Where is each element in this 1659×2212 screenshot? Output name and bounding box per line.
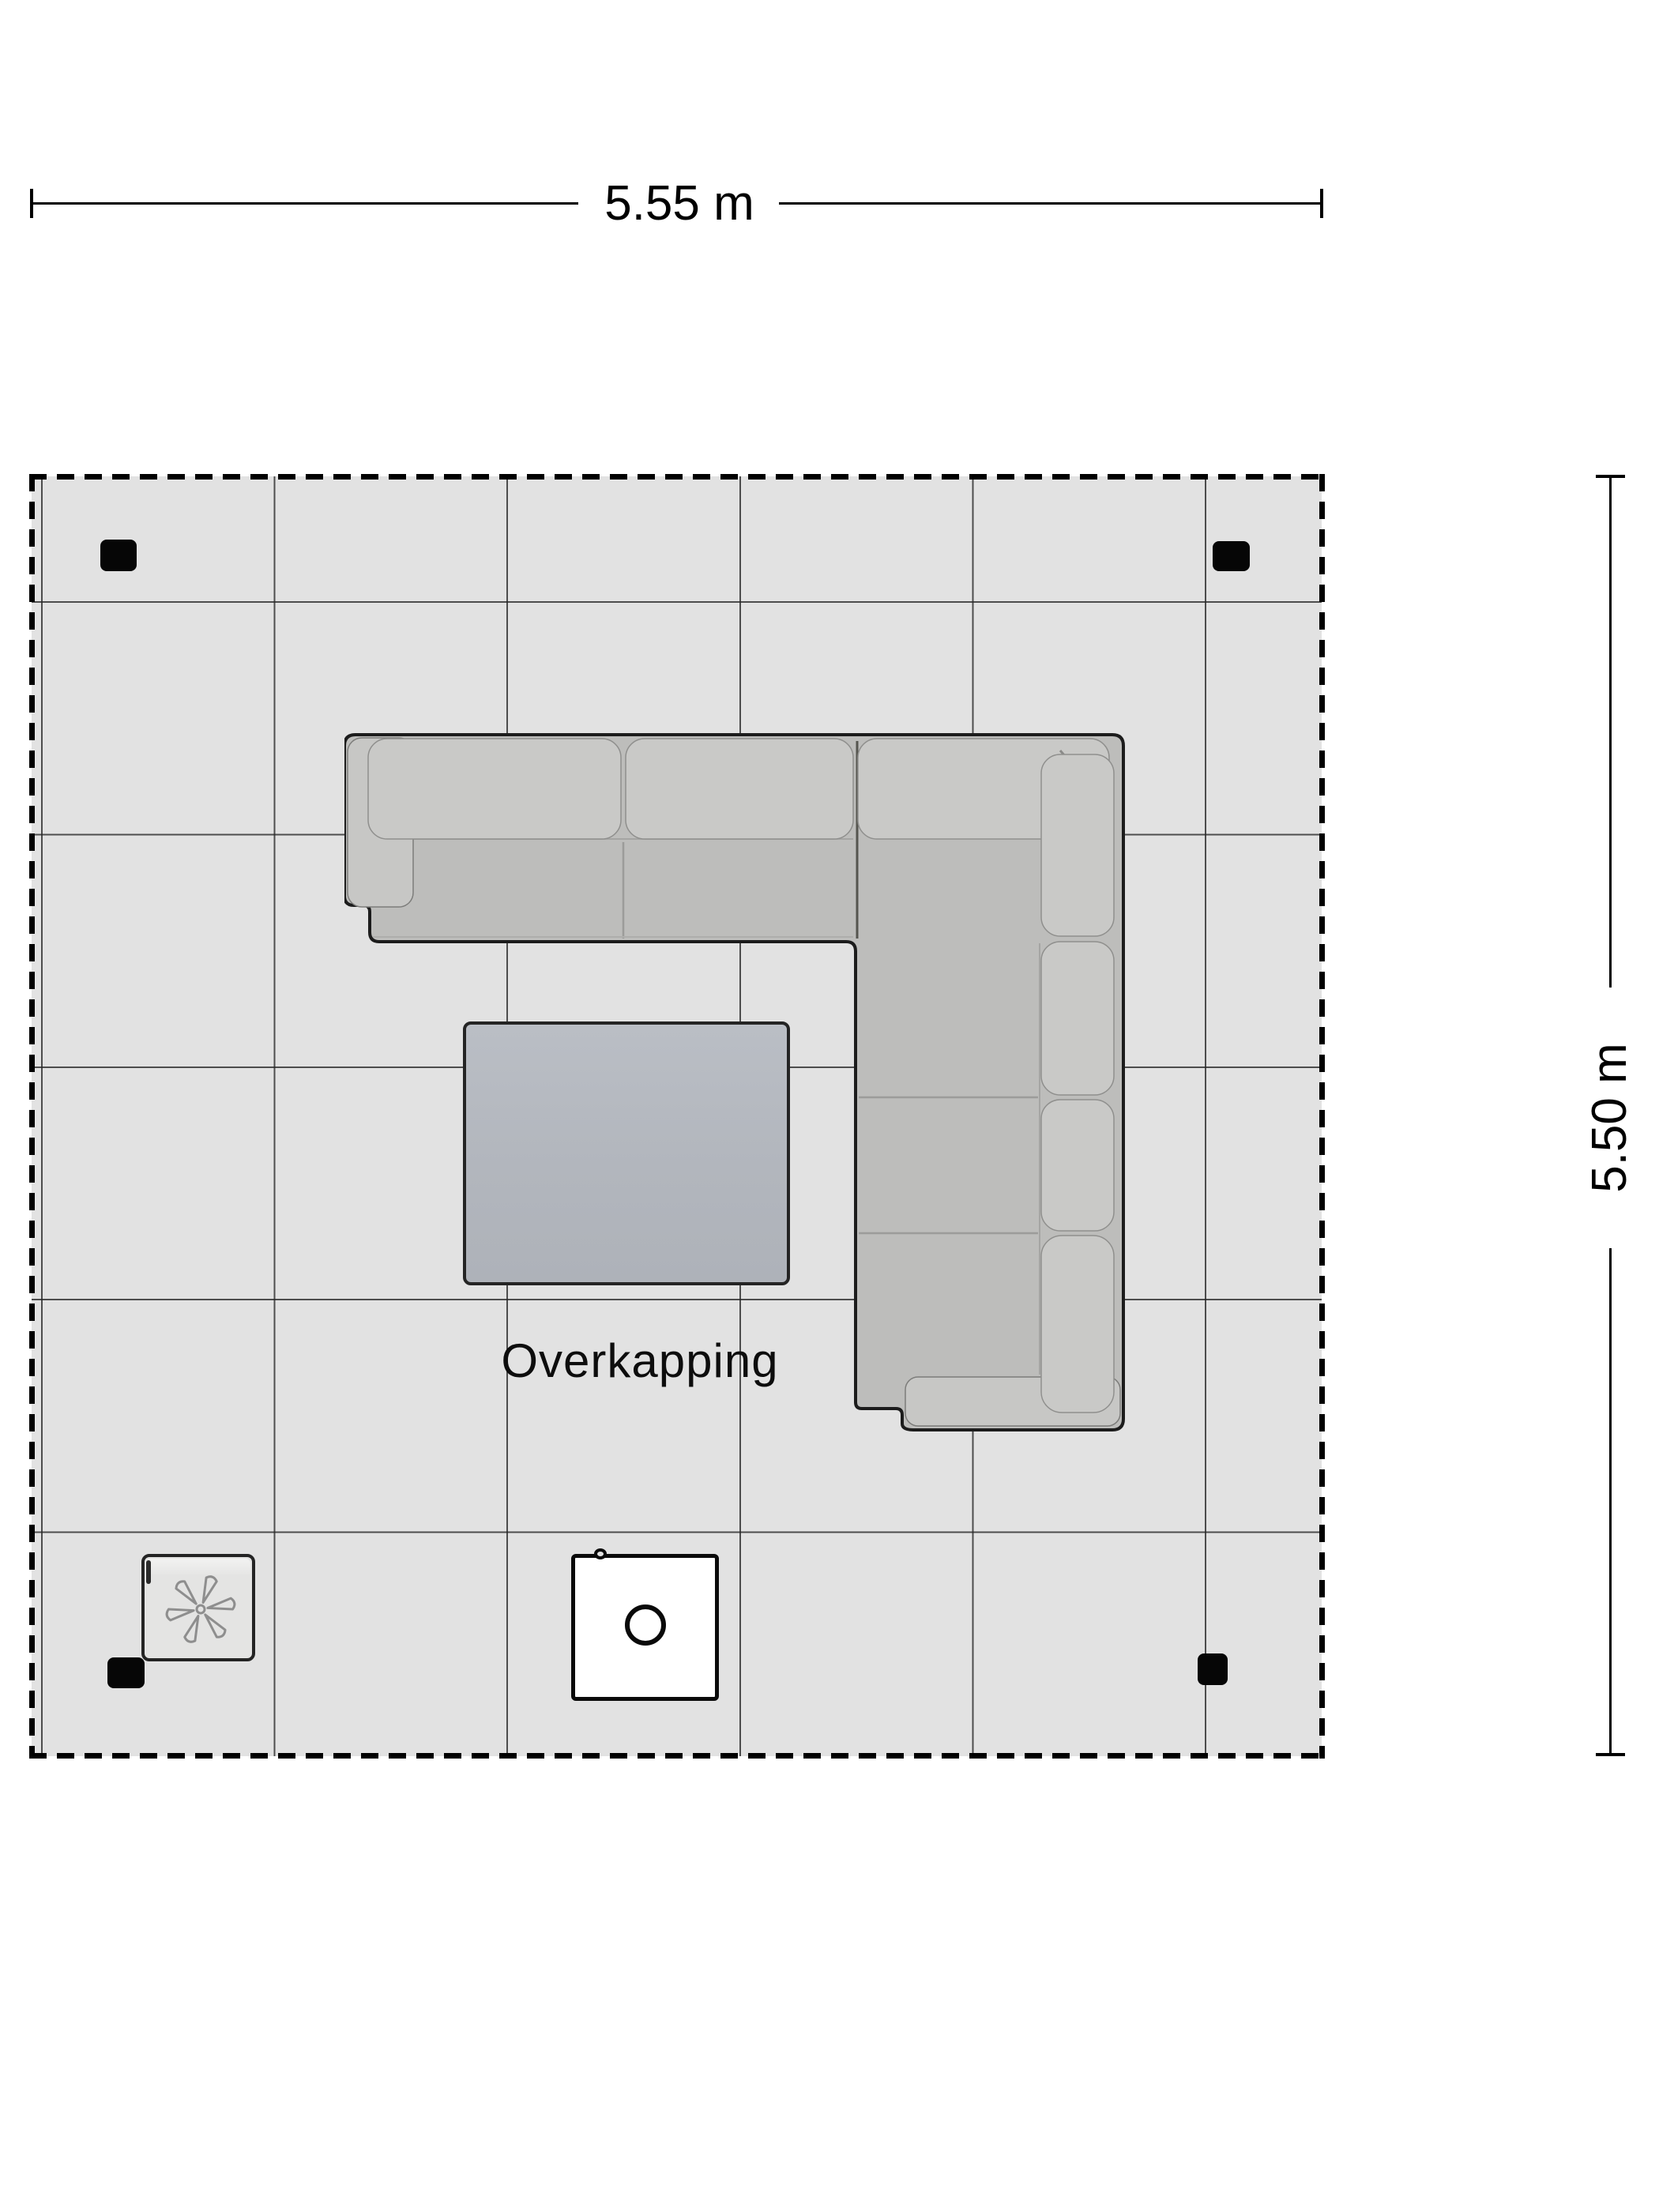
dimension-line-top-right-segment bbox=[779, 202, 1322, 205]
sofa-back-pillow bbox=[368, 739, 621, 839]
corner-sofa[interactable] bbox=[344, 733, 1127, 1433]
sofa-back-pillow bbox=[626, 739, 853, 839]
sofa-back-pillow bbox=[1041, 942, 1114, 1095]
dimension-label-width: 5.55 m bbox=[506, 172, 853, 235]
roof-post bbox=[1213, 541, 1250, 571]
fan-icon bbox=[145, 1557, 252, 1658]
fire-pit-table[interactable] bbox=[571, 1554, 719, 1701]
sofa-back-pillow bbox=[1041, 1100, 1114, 1231]
dimension-label-height: 5.50 m bbox=[1578, 944, 1642, 1292]
room-border-top bbox=[29, 474, 1325, 480]
dimension-line-top-left-segment bbox=[32, 202, 578, 205]
roof-post bbox=[1198, 1653, 1228, 1685]
floorplan-canvas: 5.55 m 5.50 m Overkapping bbox=[0, 0, 1659, 2212]
fire-table-knob bbox=[594, 1548, 607, 1559]
dimension-line-right-bottom-segment bbox=[1609, 1248, 1612, 1756]
dimension-tick-right-top bbox=[1596, 475, 1625, 478]
dimension-line-right-top-segment bbox=[1609, 476, 1612, 987]
room-border-left bbox=[29, 474, 35, 1759]
burner-circle-icon bbox=[625, 1604, 666, 1646]
sofa-back-pillow bbox=[1041, 1236, 1114, 1413]
room-border-right bbox=[1319, 474, 1325, 1759]
roof-post bbox=[100, 540, 137, 571]
roof-post bbox=[107, 1657, 145, 1688]
dimension-tick-right-bottom bbox=[1596, 1753, 1625, 1756]
patio-heater[interactable] bbox=[141, 1554, 255, 1661]
room-border-bottom bbox=[29, 1753, 1325, 1759]
dimension-tick-top-right bbox=[1320, 189, 1323, 218]
dimension-tick-top-left bbox=[30, 189, 33, 218]
sofa-back-pillow bbox=[1041, 754, 1114, 936]
